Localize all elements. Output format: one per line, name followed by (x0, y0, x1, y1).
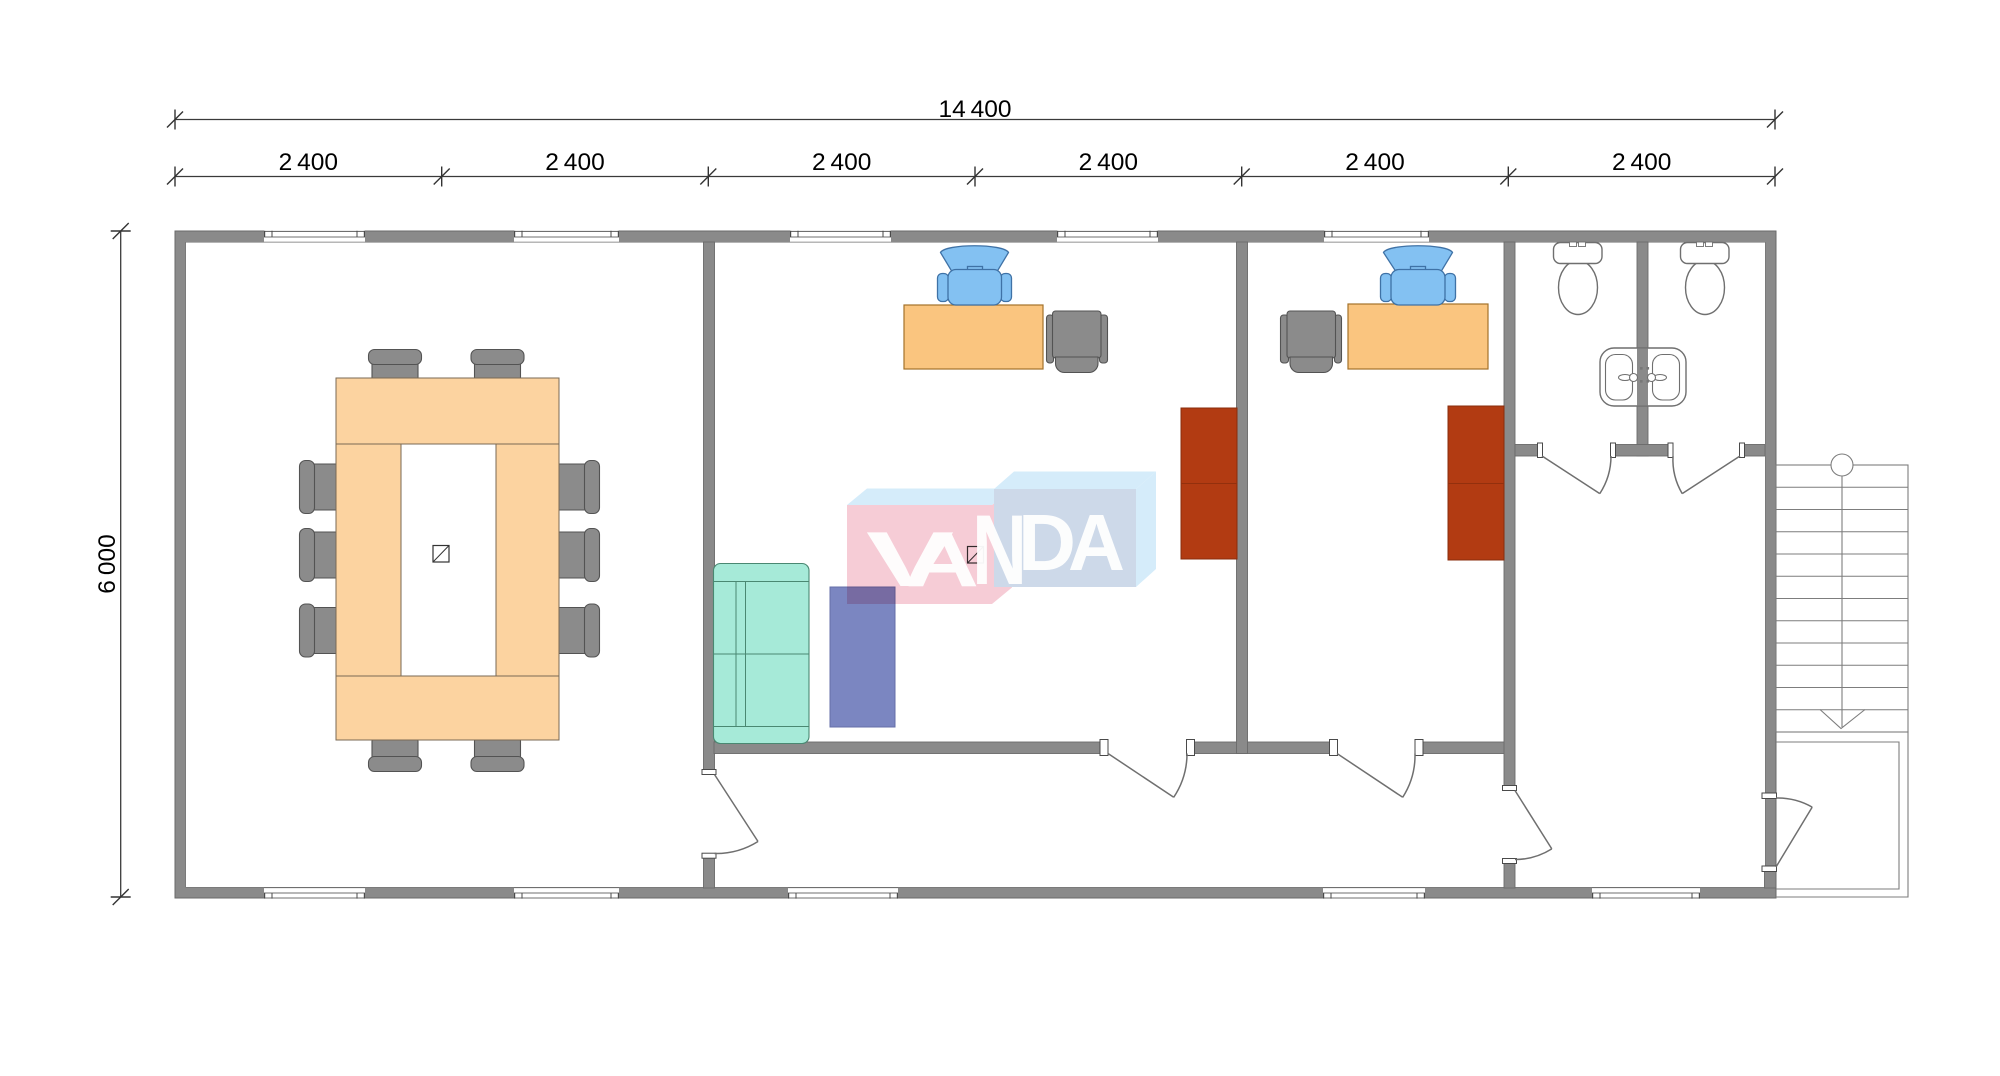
svg-text:2 400: 2 400 (279, 149, 338, 176)
svg-text:2 400: 2 400 (812, 149, 871, 176)
svg-text:A: A (1068, 498, 1125, 587)
svg-text:2 400: 2 400 (1612, 149, 1671, 176)
svg-text:6 000: 6 000 (94, 534, 121, 593)
svg-text:14 400: 14 400 (938, 96, 1011, 123)
svg-text:2 400: 2 400 (1079, 149, 1138, 176)
svg-text:2 400: 2 400 (545, 149, 604, 176)
svg-text:2 400: 2 400 (1345, 149, 1404, 176)
svg-text:A: A (906, 515, 979, 603)
